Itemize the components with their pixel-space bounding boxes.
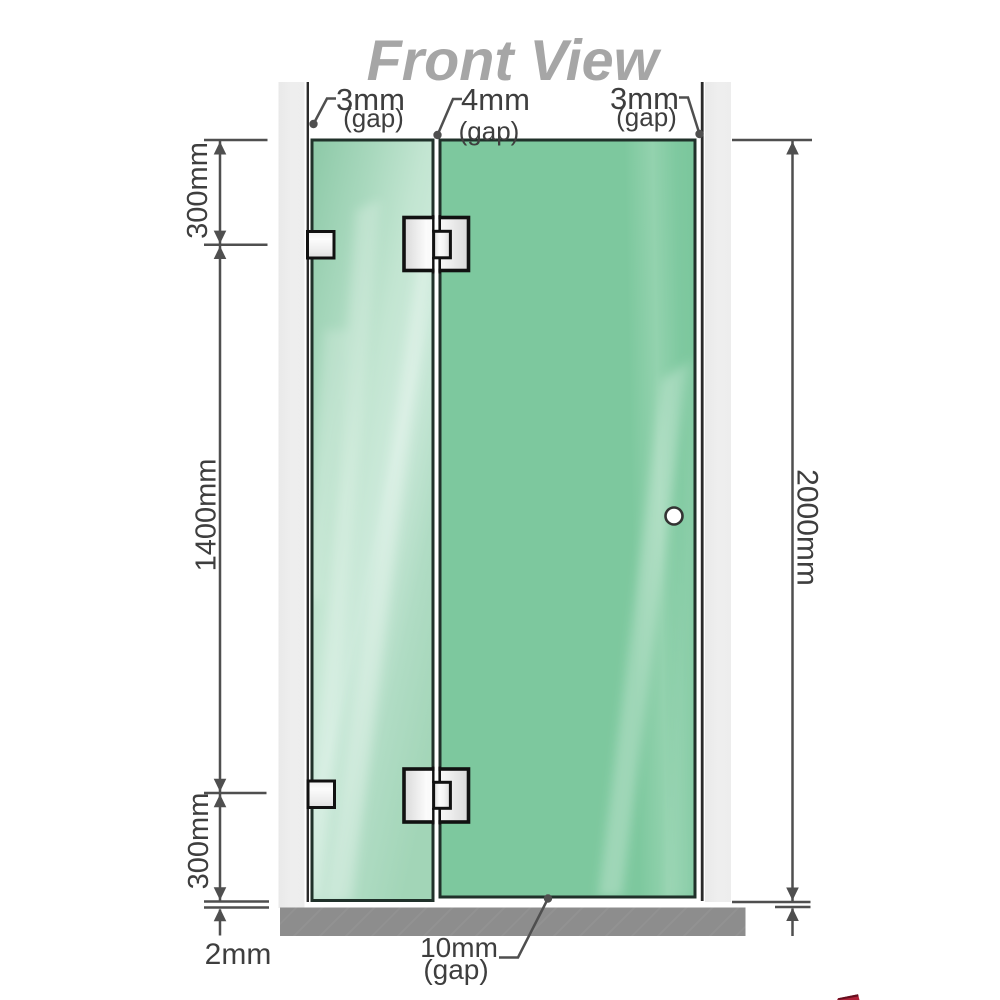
svg-text:(gap): (gap) [459, 116, 520, 146]
svg-text:300mm: 300mm [183, 793, 215, 890]
svg-text:(gap): (gap) [616, 102, 677, 132]
svg-text:2000mm: 2000mm [791, 469, 824, 586]
svg-text:1400mm: 1400mm [191, 459, 223, 572]
svg-text:(gap): (gap) [343, 103, 404, 133]
svg-text:2mm: 2mm [205, 938, 272, 971]
svg-text:300mm: 300mm [182, 142, 214, 239]
svg-text:4mm: 4mm [461, 82, 530, 117]
svg-text:(gap): (gap) [423, 954, 488, 985]
